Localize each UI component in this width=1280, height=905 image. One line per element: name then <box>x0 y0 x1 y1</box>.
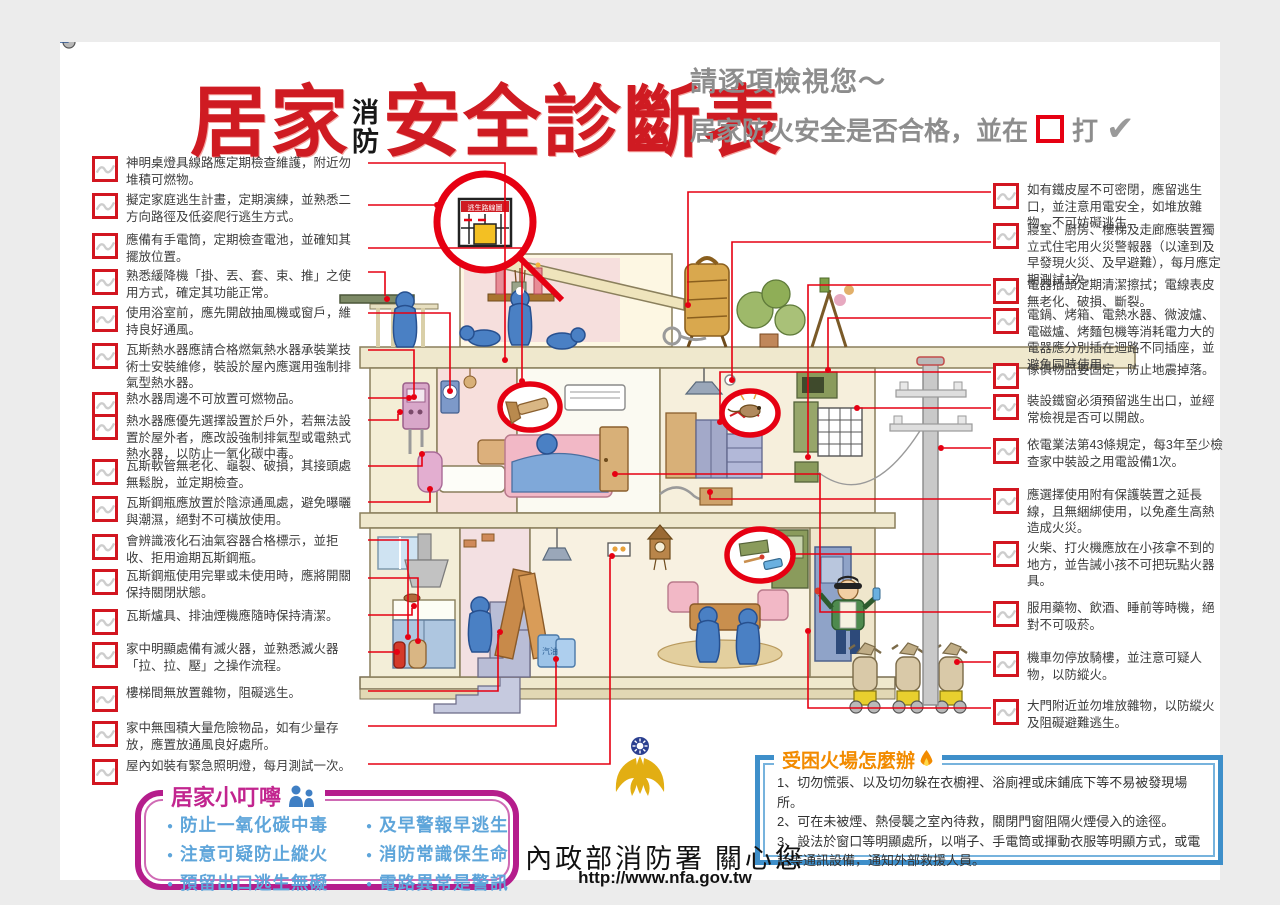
item-checkbox[interactable] <box>993 308 1019 334</box>
checklist-item: 依電業法第43條規定，每3年至少檢查家中裝設之用電設備1次。 <box>993 437 1223 470</box>
item-text: 大門附近並勿堆放雜物，以防縱火及阻礙避難逃生。 <box>1027 698 1223 731</box>
item-checkbox[interactable] <box>92 686 118 712</box>
checklist-item: 瓦斯熱水器應請合格燃氣熱水器承裝業技術士安裝維修，裝設於屋內應選用強制排氣型熱水… <box>92 342 352 392</box>
checklist-item: 大門附近並勿堆放雜物，以防縱火及阻礙避難逃生。 <box>993 698 1223 731</box>
item-checkbox[interactable] <box>92 642 118 668</box>
screenshot-root: { "header": { "title_part1": "居家", "titl… <box>0 0 1280 905</box>
item-text: 服用藥物、飲酒、睡前等時機，絕對不可吸菸。 <box>1027 600 1223 633</box>
mouse-wire-callout <box>722 391 778 435</box>
gas-cylinder-kitchen <box>409 640 426 668</box>
trapped-in-fire-box: 1、切勿慌張、以及切勿躲在衣櫥裡、浴廁裡或床鋪底下等不易被發現場所。 2、可在未… <box>755 755 1223 865</box>
floor-slab <box>360 513 895 528</box>
sleeping-person <box>537 434 557 454</box>
figure-balcony <box>393 292 416 347</box>
item-checkbox[interactable] <box>92 759 118 785</box>
item-checkbox[interactable] <box>993 363 1019 389</box>
tip-item: 注意可疑防止縱火 <box>167 841 328 866</box>
item-text: 瓦斯熱水器應請合格燃氣熱水器承裝業技術士安裝維修，裝設於屋內應選用強制排氣型熱水… <box>126 342 352 392</box>
item-text: 瓦斯鋼瓶應放置於陰涼通風處，避免曝曬與潮濕，絕對不可橫放使用。 <box>126 495 352 528</box>
item-checkbox[interactable] <box>92 343 118 369</box>
checklist-right-column: 如有鐵皮屋不可密閉，應留逃生口，並注意用電安全，如堆放雜物，不可妨礙逃生。寢室、… <box>993 42 1219 802</box>
figure-leader <box>508 290 531 345</box>
checklist-item: 電器插頭定期清潔擦拭；電線表皮無老化、破損、斷裂。 <box>993 277 1223 310</box>
figure-child <box>736 609 759 664</box>
rescue-step: 3、設法於窗口等明顯處所，以哨子、手電筒或揮動衣服等明顯方式，或電話等通訊設備，… <box>777 832 1203 871</box>
item-text: 家中無囤積大量危險物品，如有少量存放，應置放通風良好處所。 <box>126 720 352 753</box>
rescue-step: 1、切勿慌張、以及切勿躲在衣櫥裡、浴廁裡或床鋪底下等不易被發現場所。 <box>777 773 1203 812</box>
figure-child-stairs <box>468 597 491 652</box>
room-door <box>666 413 696 478</box>
item-checkbox[interactable] <box>993 541 1019 567</box>
item-text: 熟悉緩降機「掛、丟、套、束、推」之使用方式，確定其功能正常。 <box>126 268 352 301</box>
item-text: 應選擇使用附有保護裝置之延長線，且無綑綁使用，以免產生高熱造成火災。 <box>1027 487 1223 537</box>
item-checkbox[interactable] <box>92 193 118 219</box>
checklist-item: 應備有手電筒，定期檢查電池，並確知其擺放位置。 <box>92 232 352 265</box>
poster: 居家 消 防 安全診斷表 請逐項檢視您～ 居家防火安全是否合格，並在 打 ✔ <box>60 42 1220 880</box>
tip-item: 防止一氧化碳中毒 <box>167 812 328 837</box>
item-text: 家中明顯處備有滅火器，並熟悉滅火器「拉、拉、壓」之操作流程。 <box>126 641 352 674</box>
home-tips-title: 居家小叮嚀 <box>163 780 325 812</box>
item-text: 電器插頭定期清潔擦拭；電線表皮無老化、破損、斷裂。 <box>1027 277 1223 310</box>
checklist-item: 擬定家庭逃生計畫，定期演練，並熟悉二方向路徑及低姿爬行逃生方式。 <box>92 192 352 225</box>
item-text: 會辨識液化石油氣容器合格標示，並拒收、拒用逾期瓦斯鋼瓶。 <box>126 533 352 566</box>
checklist-item: 家中明顯處備有滅火器，並熟悉滅火器「拉、拉、壓」之操作流程。 <box>92 641 352 674</box>
item-checkbox[interactable] <box>993 699 1019 725</box>
stove-counter <box>393 600 455 620</box>
trapped-box-title: 受困火場怎麼辦 <box>774 746 942 773</box>
iron-window <box>818 408 862 456</box>
checklist-item: 應選擇使用附有保護裝置之延長線，且無綑綁使用，以免產生高熱造成火災。 <box>993 487 1223 537</box>
checklist-item: 瓦斯鋼瓶使用完畢或未使用時，應將開關保持關閉狀態。 <box>92 568 352 601</box>
item-text: 傢俱物品要固定，防止地震掉落。 <box>1027 362 1223 379</box>
bedroom-door <box>600 427 628 491</box>
checklist-item: 神明桌燈具線路應定期檢查維護，附近勿堆積可燃物。 <box>92 155 352 188</box>
armchair <box>758 590 788 620</box>
rescue-step: 2、可在未被煙、熱侵襲之室內待救，關閉門窗阻隔火煙侵入的途徑。 <box>777 812 1203 832</box>
item-checkbox[interactable] <box>993 183 1019 209</box>
item-checkbox[interactable] <box>993 278 1019 304</box>
tip-item: 電路異常是警訊 <box>366 870 509 895</box>
item-checkbox[interactable] <box>92 721 118 747</box>
appliance-cabinet <box>794 402 818 452</box>
checklist-item: 使用浴室前，應先開啟抽風機或窗戶，維持良好通風。 <box>92 305 352 338</box>
item-checkbox[interactable] <box>92 414 118 440</box>
flame-icon <box>919 750 934 770</box>
item-checkbox[interactable] <box>92 609 118 635</box>
checklist-item: 瓦斯爐具、排油煙機應隨時保持清潔。 <box>92 608 352 635</box>
checklist-item: 瓦斯鋼瓶應放置於陰涼通風處，避免曝曬與潮濕，絕對不可橫放使用。 <box>92 495 352 528</box>
item-checkbox[interactable] <box>92 534 118 560</box>
item-text: 屋內如裝有緊急照明燈，每月測試一次。 <box>126 758 352 775</box>
checklist-item: 火柴、打火機應放在小孩拿不到的地方，並告誡小孩不可把玩點火器具。 <box>993 540 1223 590</box>
item-checkbox[interactable] <box>993 651 1019 677</box>
item-text: 使用浴室前，應先開啟抽風機或窗戶，維持良好通風。 <box>126 305 352 338</box>
gasoline-label: 汽油 <box>542 646 558 656</box>
fire-extinguisher <box>394 642 405 668</box>
checklist-item: 瓦斯軟管無老化、龜裂、破損，其接頭處無鬆脫，並定期檢查。 <box>92 458 352 491</box>
item-text: 熱水器周邊不可放置可燃物品。 <box>126 391 352 408</box>
home-tips-items: 防止一氧化碳中毒 注意可疑防止縱火 預留出口逃生無礙 及早警報早逃生 消防常識保… <box>167 812 509 895</box>
trapped-box-inner: 1、切勿慌張、以及切勿躲在衣櫥裡、浴廁裡或床鋪底下等不易被發現場所。 2、可在未… <box>763 763 1215 857</box>
item-checkbox[interactable] <box>993 488 1019 514</box>
item-checkbox[interactable] <box>92 269 118 295</box>
ground-slab <box>360 677 895 699</box>
figure-mother <box>696 607 719 662</box>
item-text: 擬定家庭逃生計畫，定期演練，並熟悉二方向路徑及低姿爬行逃生方式。 <box>126 192 352 225</box>
checklist-item: 熟悉緩降機「掛、丟、套、束、推」之使用方式，確定其功能正常。 <box>92 268 352 301</box>
checklist-item: 家中無囤積大量危險物品，如有少量存放，應置放通風良好處所。 <box>92 720 352 753</box>
checklist-item: 裝設鐵窗必須預留逃生出口，並經常檢視是否可以開啟。 <box>993 393 1223 426</box>
item-checkbox[interactable] <box>993 223 1019 249</box>
checklist-item: 熱水器應優先選擇設置於戶外，若無法設置於屋外者，應改設強制排氣型或電熱式熱水器，… <box>92 413 352 463</box>
item-text: 瓦斯鋼瓶使用完畢或未使用時，應將開關保持關閉狀態。 <box>126 568 352 601</box>
flashlight-callout <box>500 384 560 430</box>
item-checkbox[interactable] <box>993 601 1019 627</box>
radio <box>700 488 732 505</box>
item-checkbox[interactable] <box>92 496 118 522</box>
meter-box <box>795 462 818 482</box>
range-hood <box>405 560 448 587</box>
agency-url[interactable]: http://www.nfa.gov.tw <box>515 868 815 888</box>
escape-sign-label: 逃生路線圖 <box>468 203 503 212</box>
item-checkbox[interactable] <box>92 156 118 182</box>
item-checkbox[interactable] <box>92 306 118 332</box>
home-tips-box: 居家小叮嚀 防止一氧化碳中毒 注意可疑防止縱火 預留出口逃生無礙 及早警報早逃生… <box>135 790 519 890</box>
tip-item: 及早警報早逃生 <box>366 812 509 837</box>
item-text: 裝設鐵窗必須預留逃生出口，並經常檢視是否可以開啟。 <box>1027 393 1223 426</box>
family-icon <box>287 785 317 807</box>
water-tower <box>685 258 729 347</box>
checklist-item: 機車勿停放騎樓，並注意可疑人物，以防縱火。 <box>993 650 1223 683</box>
item-checkbox[interactable] <box>92 233 118 259</box>
item-text: 樓梯間無放置雜物，阻礙逃生。 <box>126 685 352 702</box>
item-checkbox[interactable] <box>92 569 118 595</box>
matches-lighter-callout <box>727 529 793 581</box>
tip-item: 消防常識保生命 <box>366 841 509 866</box>
nfa-emblem <box>600 734 680 804</box>
item-checkbox[interactable] <box>993 438 1019 464</box>
checklist-item: 傢俱物品要固定，防止地震掉落。 <box>993 362 1223 389</box>
item-checkbox[interactable] <box>92 459 118 485</box>
item-checkbox[interactable] <box>993 394 1019 420</box>
checklist-item: 樓梯間無放置雜物，阻礙逃生。 <box>92 685 352 712</box>
item-text: 神明桌燈具線路應定期檢查維護，附近勿堆積可燃物。 <box>126 155 352 188</box>
checklist-left-column: 神明桌燈具線路應定期檢查維護，附近勿堆積可燃物。擬定家庭逃生計畫，定期演練，並熟… <box>92 42 382 842</box>
drawer-chest <box>727 434 762 478</box>
tip-item: 預留出口逃生無礙 <box>167 870 328 895</box>
item-text: 瓦斯軟管無老化、龜裂、破損，其接頭處無鬆脫，並定期檢查。 <box>126 458 352 491</box>
item-text: 依電業法第43條規定，每3年至少檢查家中裝設之用電設備1次。 <box>1027 437 1223 470</box>
item-text: 熱水器應優先選擇設置於戶外，若無法設置於屋外者，應改設強制排氣型或電熱式熱水器，… <box>126 413 352 463</box>
item-text: 火柴、打火機應放在小孩拿不到的地方，並告誡小孩不可把玩點火器具。 <box>1027 540 1223 590</box>
checklist-item: 服用藥物、飲酒、睡前等時機，絕對不可吸菸。 <box>993 600 1223 633</box>
item-text: 機車勿停放騎樓，並注意可疑人物，以防縱火。 <box>1027 650 1223 683</box>
item-text: 應備有手電筒，定期檢查電池，並確知其擺放位置。 <box>126 232 352 265</box>
item-text: 瓦斯爐具、排油煙機應隨時保持清潔。 <box>126 608 352 625</box>
checklist-item: 會辨識液化石油氣容器合格標示，並拒收、拒用逾期瓦斯鋼瓶。 <box>92 533 352 566</box>
